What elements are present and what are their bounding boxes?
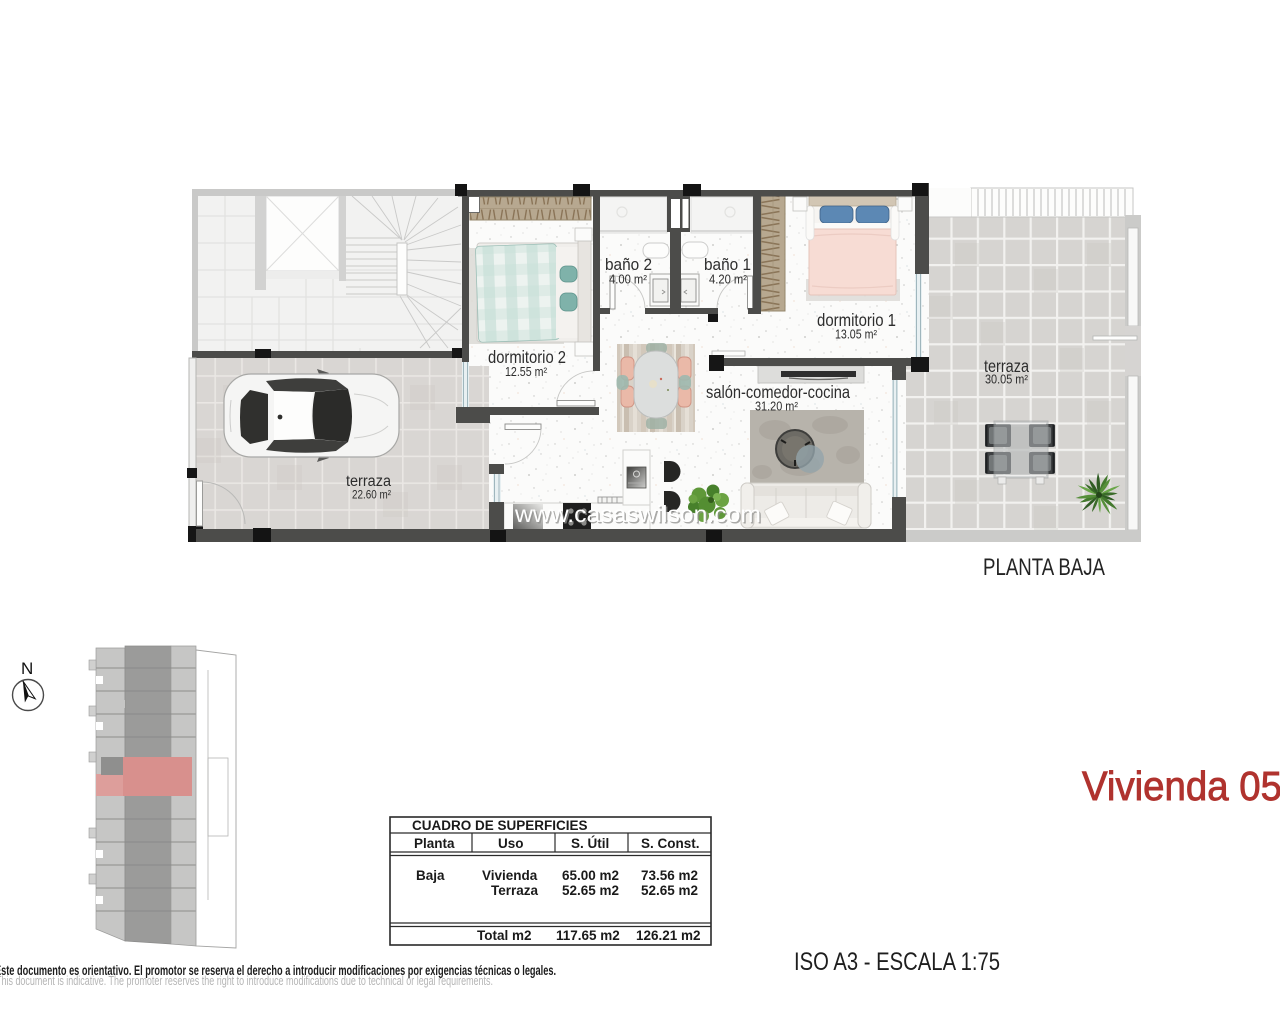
svg-text:13.05 m²: 13.05 m² (835, 327, 878, 342)
svg-text:Planta: Planta (414, 836, 455, 851)
svg-text:CUADRO DE SUPERFICIES: CUADRO DE SUPERFICIES (412, 818, 588, 833)
svg-text:N: N (21, 659, 33, 678)
svg-text:Baja: Baja (416, 868, 445, 883)
svg-text:Terraza: Terraza (491, 883, 539, 898)
svg-text:baño 1: baño 1 (704, 256, 751, 274)
svg-text:30.05 m²: 30.05 m² (985, 372, 1029, 387)
svg-text:baño 2: baño 2 (605, 256, 652, 274)
svg-text:4.00 m²: 4.00 m² (609, 273, 647, 287)
svg-text:PLANTA BAJA: PLANTA BAJA (983, 554, 1105, 581)
svg-text:Vivienda: Vivienda (482, 868, 538, 883)
svg-text:31.20 m²: 31.20 m² (755, 399, 799, 414)
svg-text:65.00 m2: 65.00 m2 (562, 868, 619, 883)
svg-text:This document is indicative. T: This document is indicative. The promote… (0, 974, 493, 988)
svg-text:4.20 m²: 4.20 m² (709, 273, 747, 287)
svg-text:117.65 m2: 117.65 m2 (556, 928, 620, 943)
svg-text:S. Útil: S. Útil (571, 836, 609, 851)
svg-text:ISO A3 - ESCALA 1:75: ISO A3 - ESCALA 1:75 (794, 948, 1000, 976)
svg-text:Uso: Uso (498, 836, 524, 851)
svg-text:52.65 m2: 52.65 m2 (562, 883, 619, 898)
svg-text:Total m2: Total m2 (477, 928, 532, 943)
svg-text:S. Const.: S. Const. (641, 836, 700, 851)
svg-text:126.21 m2: 126.21 m2 (636, 928, 701, 943)
svg-text:12.55 m²: 12.55 m² (505, 364, 548, 379)
svg-text:73.56 m2: 73.56 m2 (641, 868, 698, 883)
svg-text:52.65 m2: 52.65 m2 (641, 883, 698, 898)
svg-text:www.casaswilson.com: www.casaswilson.com (514, 501, 761, 527)
svg-text:Vivienda 05: Vivienda 05 (1082, 763, 1280, 809)
svg-text:22.60 m²: 22.60 m² (352, 488, 391, 502)
